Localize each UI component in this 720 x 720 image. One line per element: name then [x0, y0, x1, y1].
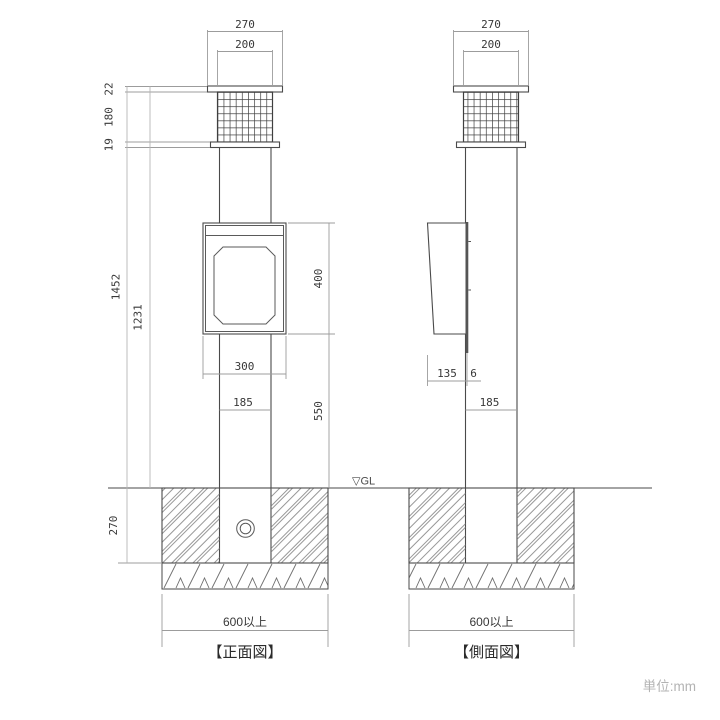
dim-front-foundation-depth: 270 — [107, 516, 120, 536]
foundation-side — [409, 488, 574, 589]
dim-side-foundation-width: 600以上 — [469, 615, 513, 629]
dim-front-overall-height: 1452 — [110, 274, 123, 301]
dim-front-box-height: 400 — [312, 269, 325, 289]
side-view-caption: 【側面図】 — [454, 644, 529, 661]
drawing-canvas: ▽GL 270 200 22 180 19 1452 1231 — [0, 0, 720, 720]
dim-front-post-width: 185 — [233, 396, 253, 409]
gl-marker: ▽GL — [352, 476, 375, 488]
dim-side-post-width: 185 — [480, 396, 500, 409]
dim-front-pole-height: 1231 — [132, 304, 145, 331]
gravel-layer-side — [409, 563, 574, 589]
foundation-front — [162, 488, 328, 589]
dim-front-lamp-height: 180 — [103, 107, 116, 127]
dim-front-foundation-width: 600以上 — [223, 615, 267, 629]
anchor-bolt-inner — [240, 523, 251, 534]
post-side — [466, 148, 518, 564]
lamp-cap-top — [208, 86, 283, 92]
anchor-bolt-outer — [237, 520, 255, 538]
mailbox-side — [428, 222, 472, 353]
unit-note: 単位:mm — [643, 679, 696, 694]
dim-front-box-width: 300 — [235, 360, 255, 373]
lamp-head-side — [454, 86, 529, 148]
front-view: ▽GL 270 200 22 180 19 1452 1231 — [103, 18, 406, 661]
lamp-cap-top-side — [454, 86, 529, 92]
lamp-grille-side — [464, 92, 519, 142]
dim-front-cap-height: 22 — [103, 82, 116, 95]
dim-front-box-to-gl: 550 — [312, 401, 325, 421]
lamp-grille — [218, 92, 273, 142]
dim-side-cap-width: 270 — [481, 18, 501, 31]
dim-front-cap-width: 270 — [235, 18, 255, 31]
gravel-layer-front — [162, 563, 328, 589]
lamp-cap-bottom-side — [457, 142, 526, 148]
lamp-head-front — [208, 86, 283, 148]
dim-side-lamp-width: 200 — [481, 38, 501, 51]
mailbox-front — [203, 223, 286, 334]
dim-side-plate-thickness: 6 — [470, 367, 477, 380]
dim-front-neck-height: 19 — [103, 138, 116, 151]
dim-front-lamp-width: 200 — [235, 38, 255, 51]
front-view-caption: 【正面図】 — [207, 644, 282, 661]
lamp-cap-bottom — [211, 142, 280, 148]
dim-side-box-depth: 135 — [437, 367, 457, 380]
post-front — [220, 148, 272, 564]
mailbox-profile — [428, 223, 466, 334]
side-view: 270 200 135 6 185 600以上 【側面図】 — [395, 18, 652, 661]
